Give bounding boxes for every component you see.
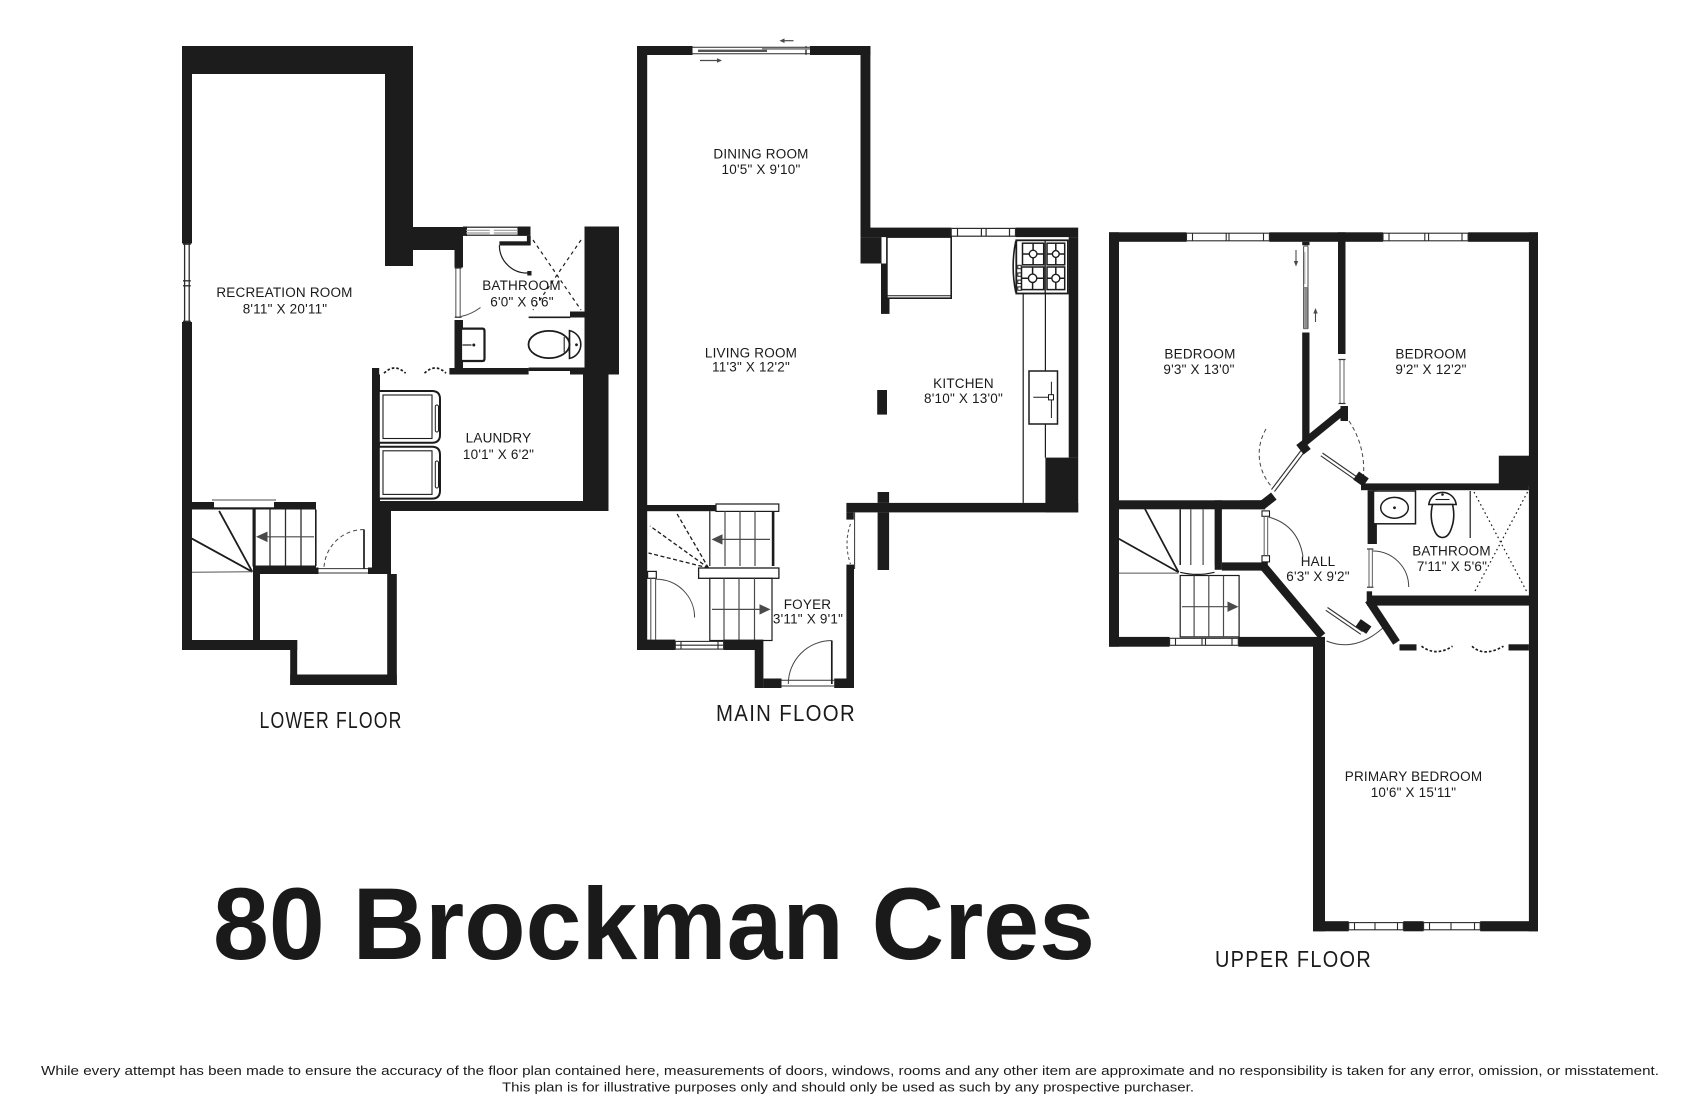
svg-text:3'11" X 9'1": 3'11" X 9'1" bbox=[773, 612, 843, 627]
svg-text:11'3" X 12'2": 11'3" X 12'2" bbox=[712, 360, 790, 375]
svg-text:BATHROOM: BATHROOM bbox=[482, 278, 561, 293]
svg-text:FOYER: FOYER bbox=[784, 597, 832, 612]
svg-text:UPPER FLOOR: UPPER FLOOR bbox=[1215, 946, 1372, 972]
svg-text:This plan is for illustrative: This plan is for illustrative purposes o… bbox=[502, 1081, 1194, 1095]
svg-text:BEDROOM: BEDROOM bbox=[1395, 347, 1466, 362]
svg-text:8'10" X 13'0": 8'10" X 13'0" bbox=[924, 391, 1003, 406]
svg-text:6'0" X 6'6": 6'0" X 6'6" bbox=[490, 295, 553, 310]
svg-text:LAUNDRY: LAUNDRY bbox=[466, 431, 532, 446]
svg-text:9'3" X 13'0": 9'3" X 13'0" bbox=[1163, 362, 1234, 377]
svg-text:PRIMARY BEDROOM: PRIMARY BEDROOM bbox=[1345, 769, 1483, 784]
svg-text:8'11" X 20'11": 8'11" X 20'11" bbox=[243, 302, 328, 317]
svg-text:MAIN FLOOR: MAIN FLOOR bbox=[716, 700, 856, 726]
svg-text:BEDROOM: BEDROOM bbox=[1164, 347, 1235, 362]
svg-text:While every attempt has been m: While every attempt has been made to ens… bbox=[41, 1064, 1659, 1078]
svg-text:LOWER FLOOR: LOWER FLOOR bbox=[260, 707, 403, 733]
svg-text:BATHROOM: BATHROOM bbox=[1412, 544, 1491, 559]
svg-text:10'6" X 15'11": 10'6" X 15'11" bbox=[1371, 785, 1457, 800]
svg-text:KITCHEN: KITCHEN bbox=[933, 376, 994, 391]
svg-text:9'2" X 12'2": 9'2" X 12'2" bbox=[1395, 362, 1466, 377]
svg-text:DINING ROOM: DINING ROOM bbox=[713, 147, 808, 162]
svg-text:10'1" X 6'2": 10'1" X 6'2" bbox=[463, 447, 534, 462]
svg-text:LIVING ROOM: LIVING ROOM bbox=[705, 346, 797, 361]
svg-text:7'11" X 5'6": 7'11" X 5'6" bbox=[1417, 559, 1487, 574]
svg-text:6'3" X 9'2": 6'3" X 9'2" bbox=[1286, 569, 1349, 584]
svg-text:HALL: HALL bbox=[1301, 554, 1336, 569]
svg-text:80 Brockman Cres: 80 Brockman Cres bbox=[213, 867, 1095, 981]
svg-text:10'5" X 9'10": 10'5" X 9'10" bbox=[722, 162, 801, 177]
svg-text:RECREATION ROOM: RECREATION ROOM bbox=[216, 285, 352, 300]
